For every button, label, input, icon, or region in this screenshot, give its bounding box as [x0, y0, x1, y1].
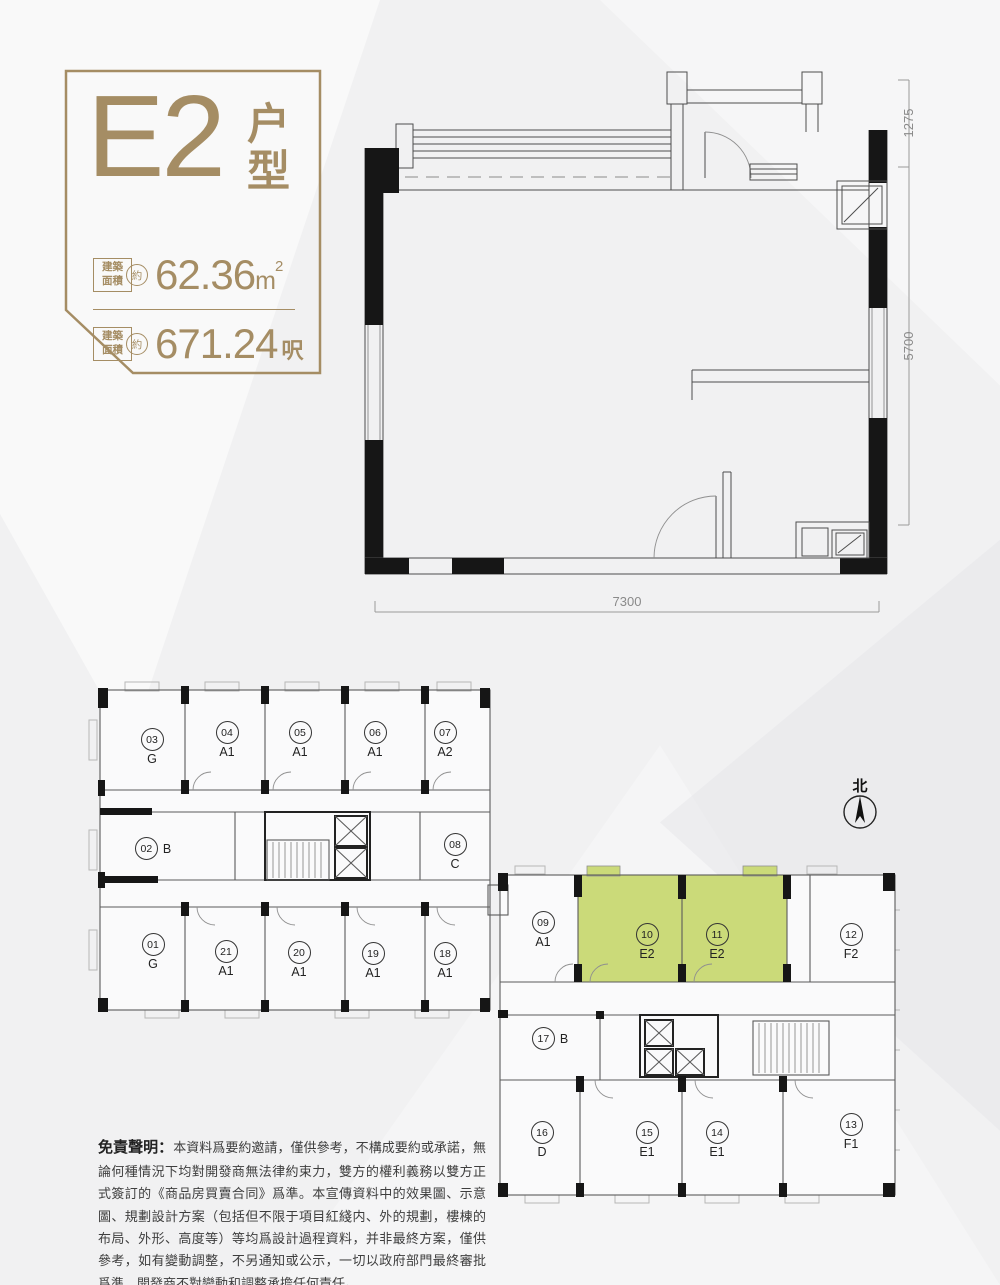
unit-walls	[365, 130, 887, 574]
window-icon-top	[837, 181, 887, 229]
unit-label-15: 15E1	[622, 1121, 672, 1159]
approx-badge: 約	[126, 333, 148, 355]
building-floor-plate: 北 03G 04A1 05A1 06A1 07A2 02B 08C 01G 21…	[85, 680, 900, 1210]
area-row-sqm: 建築 面積 約 62.36m2	[93, 251, 282, 299]
dimension-label-5700: 5700	[901, 332, 916, 361]
area-divider	[93, 309, 295, 310]
unit-label-05: 05A1	[275, 721, 325, 759]
disclaimer-heading: 免責聲明：	[98, 1139, 173, 1156]
north-label: 北	[852, 778, 867, 795]
unit-title-card: E2 户型 建築 面積 約 62.36m2 建築 面積 約 671.24呎	[63, 68, 323, 376]
unit-code: E2	[87, 78, 223, 194]
top-wall-grille	[750, 164, 797, 180]
unit-label-21: 21A1	[201, 940, 251, 978]
unit-label-17: 17B	[519, 1027, 581, 1050]
dimension-lines: 1275 5700 7300	[375, 80, 916, 612]
disclaimer-body: 本資料爲要約邀請，僅供參考，不構成要約或承諾，無論何種情況下均對開發商無法律約束…	[98, 1140, 486, 1285]
approx-badge: 約	[126, 264, 148, 286]
north-arrow: 北	[844, 778, 876, 828]
unit-label-11-highlighted: 11E2	[692, 923, 742, 961]
unit-label-01: 01G	[128, 933, 178, 971]
bath-door-swing	[654, 496, 716, 558]
floorplan-page: E2 户型 建築 面積 約 62.36m2 建築 面積 約 671.24呎	[0, 0, 1000, 1285]
unit-label-03: 03G	[127, 728, 177, 766]
unit-label-18: 18A1	[420, 942, 470, 980]
unit-label-13: 13F1	[826, 1113, 876, 1151]
unit-label-07: 07A2	[420, 721, 470, 759]
area-value-sqft: 671.24呎	[155, 320, 302, 368]
unit-floorplan-drawing: 1275 5700 7300	[360, 60, 920, 620]
unit-type-suffix: 户型	[247, 102, 293, 197]
dimension-label-1275: 1275	[901, 109, 916, 138]
unit-label-12: 12F2	[826, 923, 876, 961]
dimension-label-7300: 7300	[613, 594, 642, 609]
unit-label-09: 09A1	[518, 911, 568, 949]
unit-label-14: 14E1	[692, 1121, 742, 1159]
unit-label-04: 04A1	[202, 721, 252, 759]
unit-label-06: 06A1	[350, 721, 400, 759]
area-row-sqft: 建築 面積 約 671.24呎	[93, 320, 302, 368]
unit-label-10-highlighted: 10E2	[622, 923, 672, 961]
north-needle	[855, 796, 865, 823]
area-value-sqm: 62.36m2	[155, 251, 282, 299]
balcony-railing	[396, 124, 671, 168]
unit-label-02: 02B	[122, 837, 184, 860]
entry-corridor	[667, 72, 822, 190]
unit-label-16: 16D	[517, 1121, 567, 1159]
utility-closet	[796, 522, 869, 558]
entry-door-swing	[705, 132, 751, 178]
unit-label-08: 08C	[430, 833, 480, 871]
disclaimer-text: 免責聲明：本資料爲要約邀請，僅供參考，不構成要約或承諾，無論何種情況下均對開發商…	[98, 1135, 486, 1285]
unit-label-19: 19A1	[348, 942, 398, 980]
unit-label-20: 20A1	[274, 941, 324, 979]
